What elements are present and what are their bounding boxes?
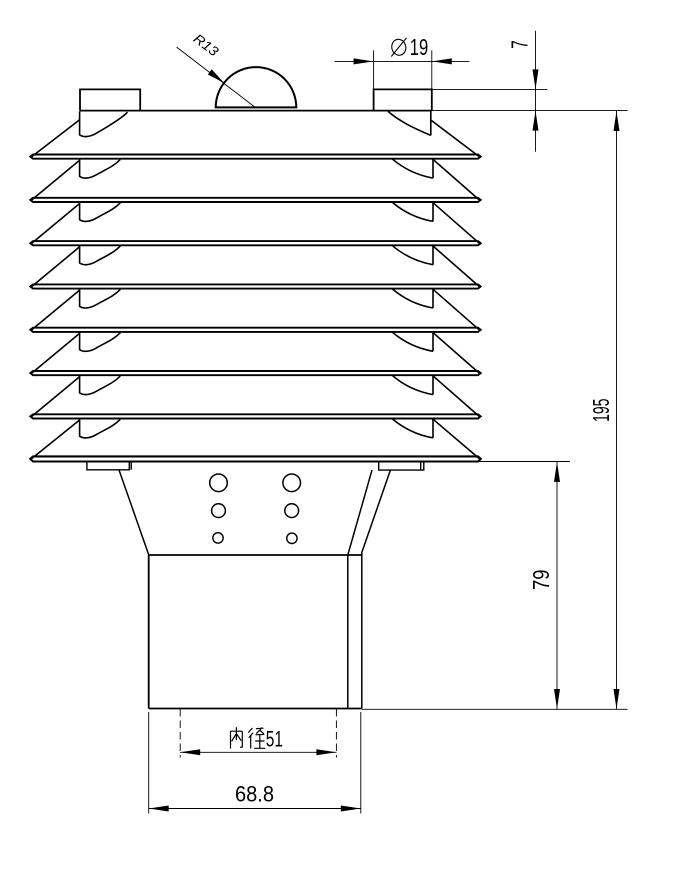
svg-text:51: 51 [266, 727, 283, 752]
svg-text:68.8: 68.8 [235, 782, 274, 807]
svg-text:19: 19 [410, 34, 429, 60]
svg-text:7: 7 [506, 40, 532, 49]
svg-text:79: 79 [528, 570, 554, 591]
svg-text:195: 195 [588, 399, 614, 423]
